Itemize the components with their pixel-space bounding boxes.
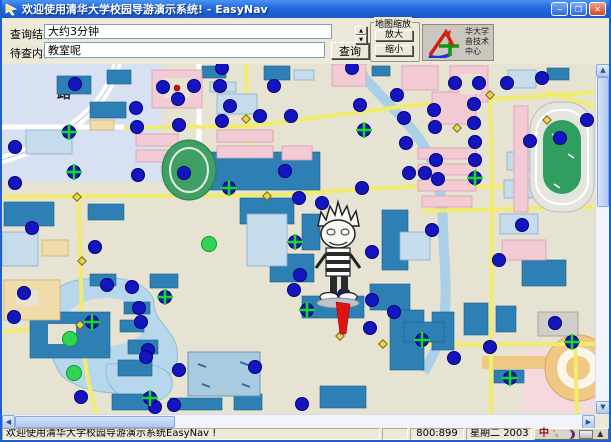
close-button[interactable]: ✕ xyxy=(589,2,606,16)
ime-moon-icon[interactable] xyxy=(567,430,575,439)
scroll-down-icon[interactable]: ▼ xyxy=(596,401,610,414)
scroll-up-icon[interactable]: ▲ xyxy=(596,64,610,77)
logo-text: 华大学 音技术 中心 xyxy=(465,27,489,57)
spinner-control: ▲ ▼ xyxy=(355,26,367,44)
cst-logo-icon xyxy=(425,28,463,58)
scroll-right-icon[interactable]: ▶ xyxy=(582,415,595,429)
campus-map[interactable]: 路 xyxy=(2,64,595,414)
app-icon xyxy=(5,3,18,16)
query-result-field[interactable]: 大约3分钟 xyxy=(44,24,332,39)
ime-language-icon[interactable]: 中 xyxy=(539,429,549,439)
window-title: 欢迎使用清华大学校园导游演示系统! - EasyNav xyxy=(22,1,268,17)
ime-toolbar[interactable]: 中 '。 ▲ xyxy=(534,428,609,440)
spinner-down-icon[interactable]: ▼ xyxy=(355,35,367,44)
scrollbar-corner xyxy=(595,414,609,428)
map-zoom-group-label: 地图缩放 xyxy=(374,17,412,30)
app-window: 欢迎使用清华大学校园导游演示系统! - EasyNav − ❐ ✕ (帮助)(H… xyxy=(0,0,611,442)
query-button[interactable]: 查询 xyxy=(331,42,369,59)
spinner-up-icon[interactable]: ▲ xyxy=(355,26,367,35)
minimize-button[interactable]: − xyxy=(551,2,568,16)
vertical-scrollbar[interactable]: ▲ ▼ xyxy=(595,64,609,414)
cst-logo: 华大学 音技术 中心 xyxy=(422,24,494,61)
ime-keyboard-icon[interactable] xyxy=(579,430,593,439)
query-content-input[interactable] xyxy=(44,42,325,58)
status-message: 欢迎使用清华大学校园导游演示系统EasyNav ! xyxy=(2,428,380,440)
map-zoom-group: 地图缩放 放大 缩小 xyxy=(370,22,420,62)
zoom-in-button[interactable]: 放大 xyxy=(375,30,413,41)
vertical-scroll-thumb[interactable] xyxy=(597,77,609,207)
horizontal-scroll-thumb[interactable] xyxy=(15,416,175,428)
maximize-button[interactable]: ❐ xyxy=(570,2,587,16)
scroll-left-icon[interactable]: ◀ xyxy=(2,415,15,429)
zoom-out-button[interactable]: 缩小 xyxy=(375,45,413,56)
title-bar[interactable]: 欢迎使用清华大学校园导游演示系统! - EasyNav − ❐ ✕ xyxy=(2,0,609,18)
status-spacer xyxy=(382,428,408,440)
ime-soft-keyboard-icon[interactable]: ▲ xyxy=(597,430,603,438)
status-coordinates: 800:899 xyxy=(410,428,464,440)
ime-punctuation-icon[interactable]: '。 xyxy=(553,430,563,438)
status-date: 星期二 2003 xyxy=(466,428,532,440)
status-bar: 欢迎使用清华大学校园导游演示系统EasyNav ! 800:899 星期二 20… xyxy=(2,428,609,440)
toolbar: 查询结果: 大约3分钟 待查内容: 查询 ▲ ▼ 地图缩放 放大 缩小 华大学 … xyxy=(2,18,609,64)
horizontal-scrollbar[interactable]: ◀ ▶ xyxy=(2,414,595,428)
